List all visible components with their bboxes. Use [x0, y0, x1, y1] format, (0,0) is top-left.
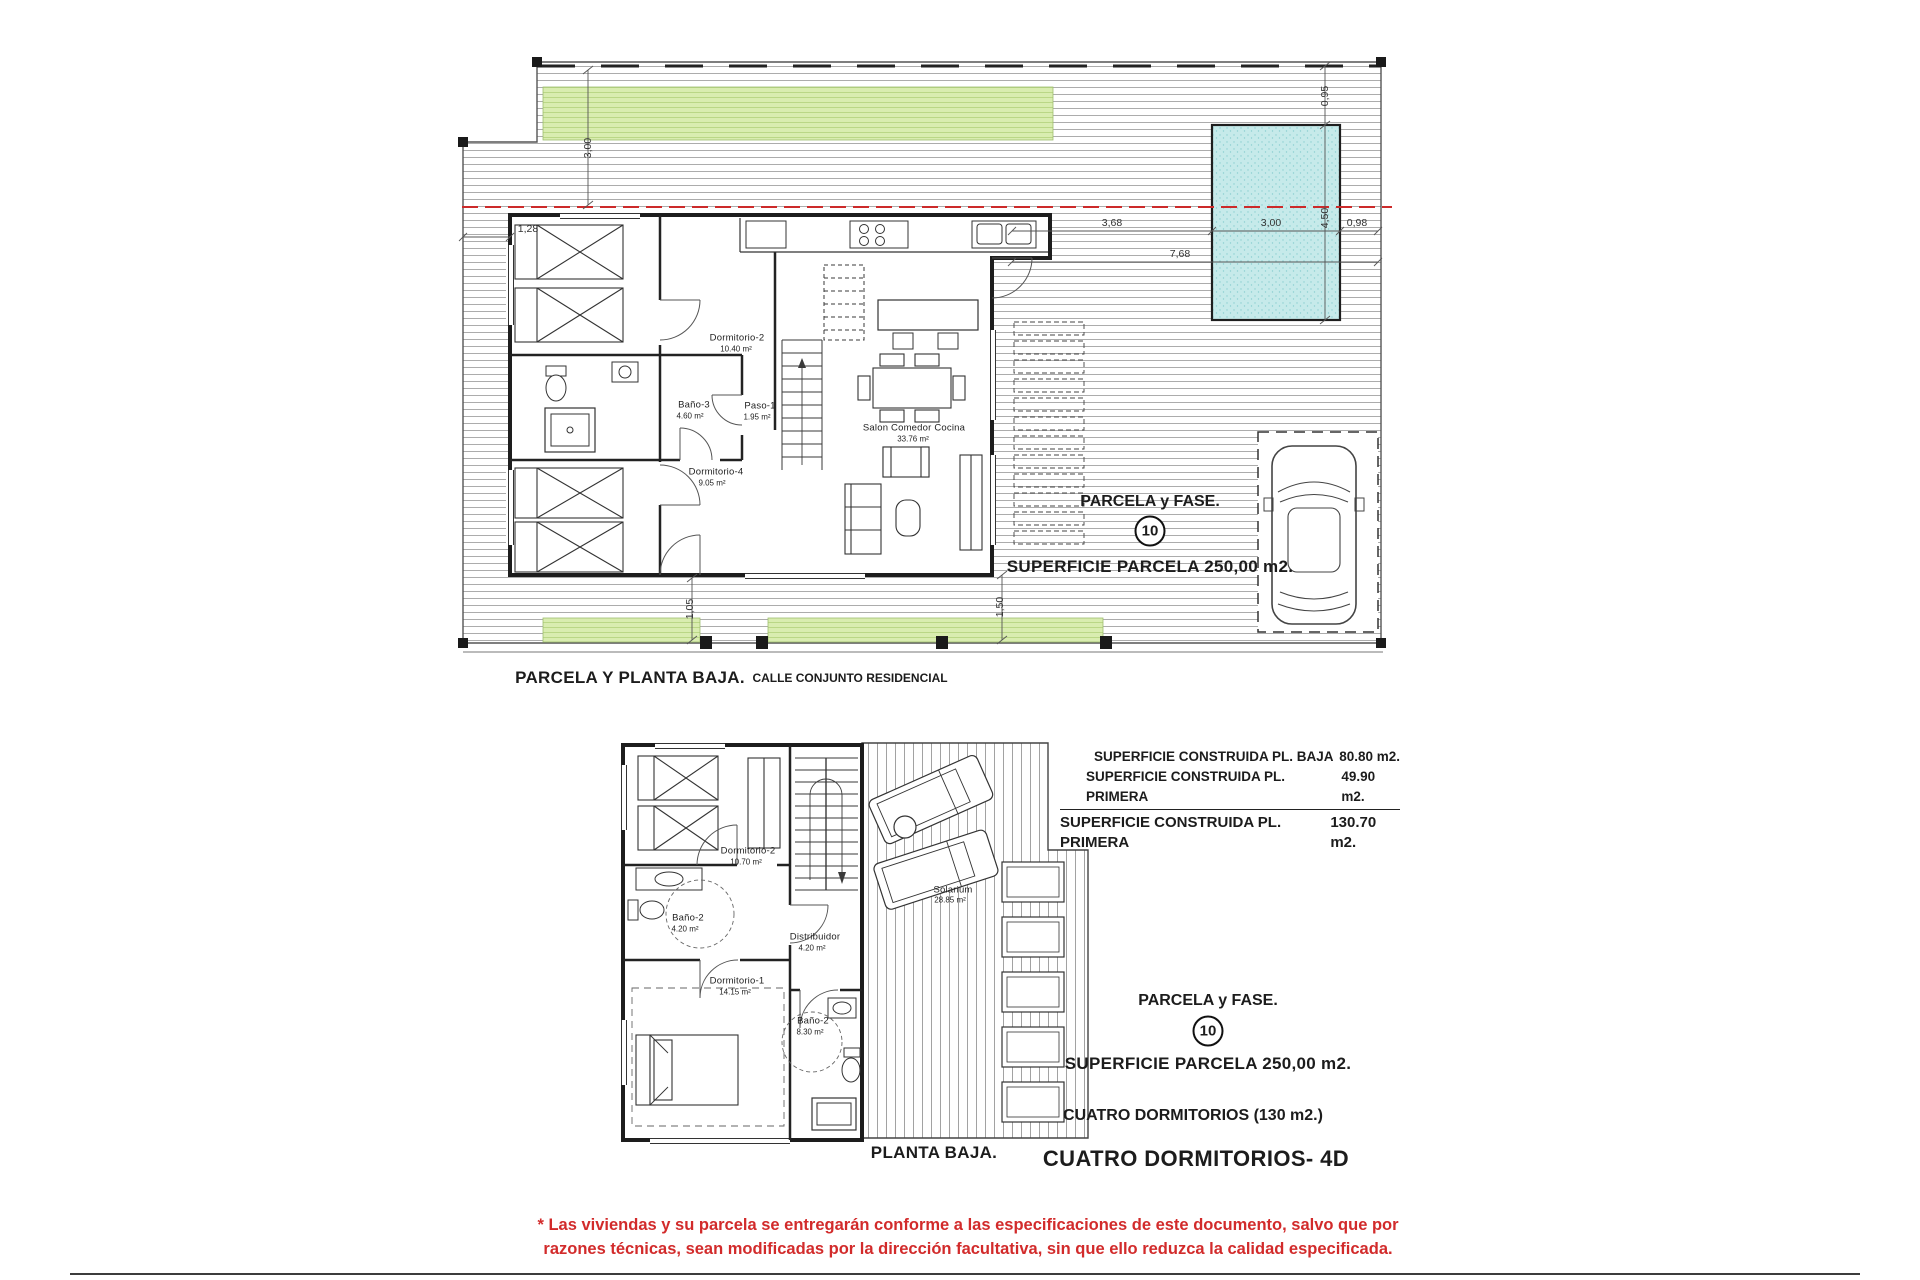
type-title: CUATRO DORMITORIOS- 4D — [1043, 1146, 1349, 1172]
disclaimer-line-1: * Las viviendas y su parcela se entregar… — [537, 1216, 1398, 1235]
street-label: CALLE CONJUNTO RESIDENCIAL — [752, 671, 947, 685]
parcel-number-badge: 10 — [1135, 516, 1166, 547]
first-floor-plan — [619, 741, 1088, 1144]
parcel-phase-title-2: PARCELA y FASE. — [1138, 992, 1278, 1010]
disclaimer-line-2: razones técnicas, sean modificadas por l… — [543, 1240, 1392, 1259]
built-area-value: 80.80 m2. — [1339, 747, 1400, 767]
dim-house-to-pool: 3,68 — [1102, 217, 1122, 229]
dim-pool-to-fence: 0,98 — [1347, 217, 1367, 229]
room-area: 10.70 m² — [730, 858, 762, 867]
garden-strip-front-right — [768, 618, 1103, 642]
dim-pool-offset: 0,95 — [1319, 86, 1331, 106]
dim-garden-depth: 3,00 — [582, 138, 594, 158]
plan-linework — [0, 0, 1920, 1280]
coffee-table — [896, 500, 920, 536]
armchair — [883, 447, 929, 477]
parcel-phase-title: PARCELA y FASE. — [1080, 493, 1220, 511]
built-area-row-total: SUPERFICIE CONSTRUIDA PL. PRIMERA 130.70… — [1060, 813, 1400, 853]
side-table — [894, 816, 916, 838]
dim-pool-width: 3,00 — [1261, 217, 1281, 229]
built-area-value: 49.90 m2. — [1341, 767, 1400, 807]
room-area: 28.85 m² — [934, 896, 966, 905]
dim-front-right: 1,50 — [994, 597, 1006, 617]
room-area: 33.76 m² — [897, 435, 929, 444]
room-area: 4.20 m² — [671, 925, 698, 934]
room-label: Baño-2 — [797, 1016, 829, 1027]
sheet-bottom-rule — [70, 1273, 1860, 1275]
room-label: Salon Comedor Cocina — [863, 423, 965, 434]
room-area: 1.95 m² — [743, 413, 770, 422]
sofa — [845, 484, 881, 554]
room-label: Paso-1 — [744, 401, 775, 412]
planters — [1002, 862, 1064, 1122]
dim-pool-length: 4,50 — [1319, 208, 1331, 228]
room-area: 8.30 m² — [796, 1028, 823, 1037]
room-label: Dormitorio-2 — [721, 846, 776, 857]
areas-divider — [1060, 809, 1400, 810]
room-label: Distribuidor — [790, 932, 840, 943]
garden-strip-top — [543, 87, 1053, 140]
type-note: CUATRO DORMITORIOS (130 m2.) — [1063, 1107, 1323, 1125]
dim-side-setback: 1,28 — [518, 223, 538, 235]
floor-plan-sheet: Dormitorio-2 10.40 m² Baño-3 4.60 m² Pas… — [0, 0, 1920, 1280]
room-area: 10.40 m² — [720, 345, 752, 354]
built-area-label: SUPERFICIE CONSTRUIDA PL. BAJA — [1094, 747, 1334, 767]
room-area: 14.15 m² — [719, 988, 751, 997]
built-area-row: SUPERFICIE CONSTRUIDA PL. BAJA 80.80 m2. — [1060, 747, 1400, 767]
parcel-number-badge-2: 10 — [1193, 1016, 1224, 1047]
house-first-floor — [619, 741, 862, 1144]
parcel-area-text-2: SUPERFICIE PARCELA 250,00 m2. — [1065, 1054, 1351, 1074]
room-label: Baño-3 — [678, 400, 710, 411]
bottom-plan-caption: PLANTA BAJA. — [871, 1143, 997, 1163]
room-area: 4.60 m² — [676, 412, 703, 421]
room-label: Dormitorio-1 — [710, 976, 765, 987]
built-area-label: SUPERFICIE CONSTRUIDA PL. PRIMERA — [1086, 767, 1341, 807]
room-label: Dormitorio-4 — [689, 467, 744, 478]
room-label: Solarium — [933, 885, 972, 896]
built-area-label: SUPERFICIE CONSTRUIDA PL. PRIMERA — [1060, 813, 1330, 853]
built-area-row: SUPERFICIE CONSTRUIDA PL. PRIMERA 49.90 … — [1060, 767, 1400, 807]
room-label: Dormitorio-2 — [710, 333, 765, 344]
garden-strip-front-left — [543, 618, 700, 642]
dim-front-left: 1,05 — [684, 599, 696, 619]
sideboard — [960, 455, 982, 550]
room-label: Baño-2 — [672, 913, 704, 924]
built-areas-block: SUPERFICIE CONSTRUIDA PL. BAJA 80.80 m2.… — [1060, 747, 1400, 853]
top-plan-caption: PARCELA Y PLANTA BAJA. — [515, 668, 745, 688]
room-area: 4.20 m² — [798, 944, 825, 953]
kitchen-counter — [740, 218, 1048, 252]
room-area: 9.05 m² — [698, 479, 725, 488]
house-ground-floor — [506, 211, 1050, 579]
dim-house-to-fence: 7,68 — [1170, 248, 1190, 260]
built-area-value: 130.70 m2. — [1330, 813, 1400, 853]
car — [1264, 446, 1364, 624]
parcel-area-text: SUPERFICIE PARCELA 250,00 m2. — [1007, 557, 1293, 577]
